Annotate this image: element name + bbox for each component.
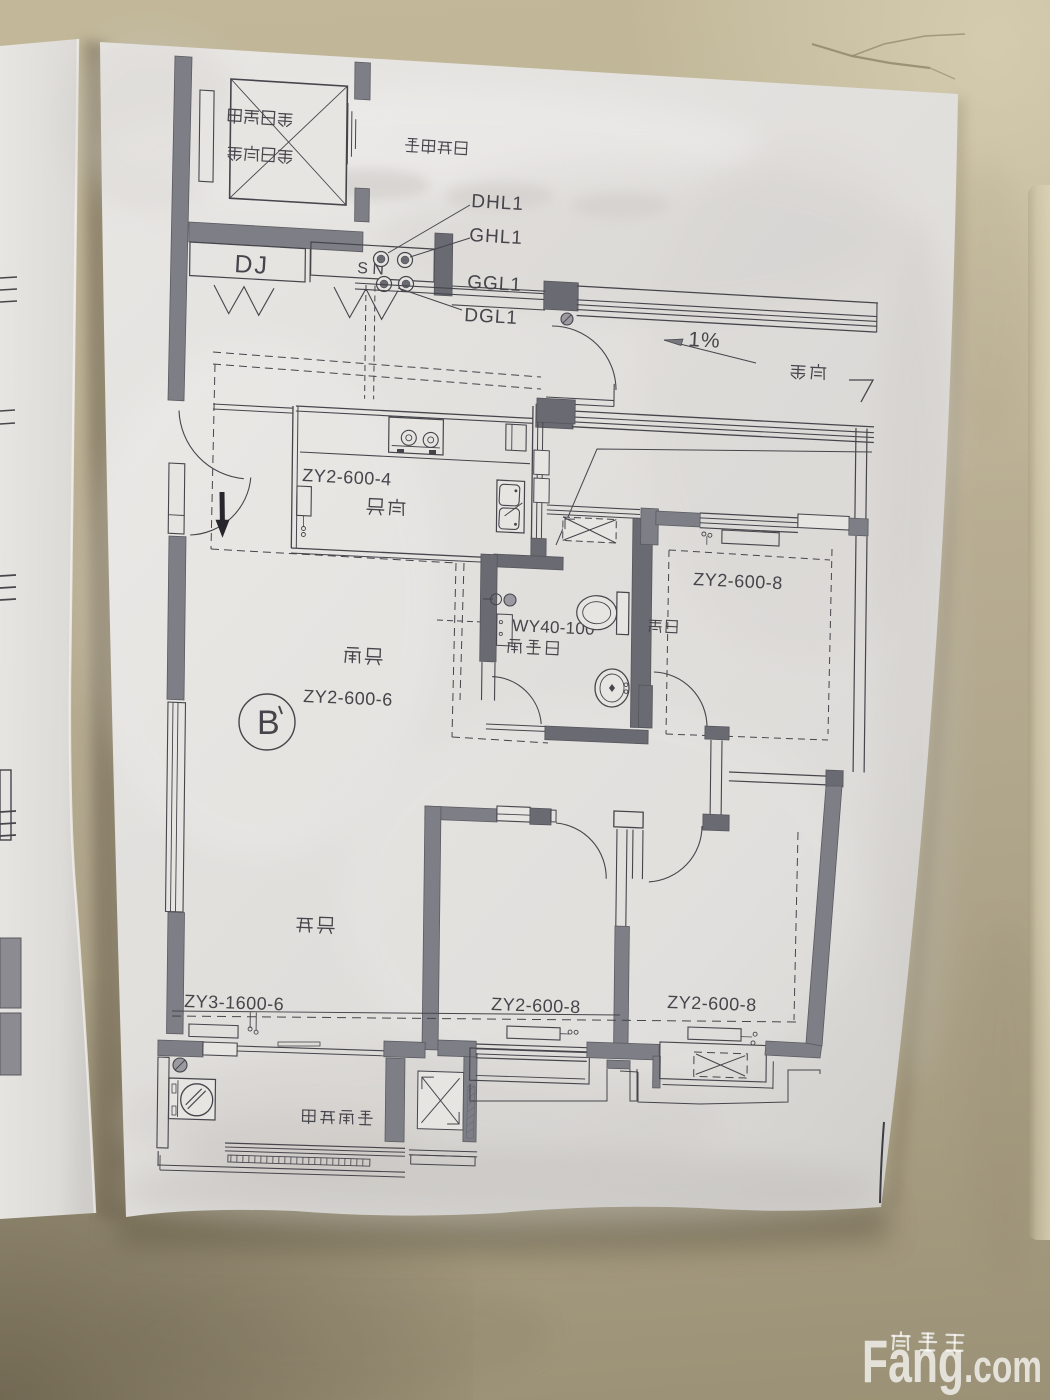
svg-text:Fang: Fang <box>862 1328 964 1395</box>
svg-text:ZY2-600-8: ZY2-600-8 <box>667 992 757 1015</box>
svg-text:B: B <box>257 704 280 742</box>
svg-text:GHL1: GHL1 <box>469 225 524 249</box>
svg-text:ZY2-600-8: ZY2-600-8 <box>693 569 783 593</box>
svg-text:.com: .com <box>964 1341 1042 1392</box>
svg-text:DJ: DJ <box>234 250 270 280</box>
svg-text:DHL1: DHL1 <box>471 191 525 215</box>
svg-text:1%: 1% <box>688 328 722 353</box>
svg-text:DGL1: DGL1 <box>464 305 519 329</box>
svg-text:GGL1: GGL1 <box>467 272 523 296</box>
svg-text:ZY2-600-6: ZY2-600-6 <box>303 686 393 710</box>
